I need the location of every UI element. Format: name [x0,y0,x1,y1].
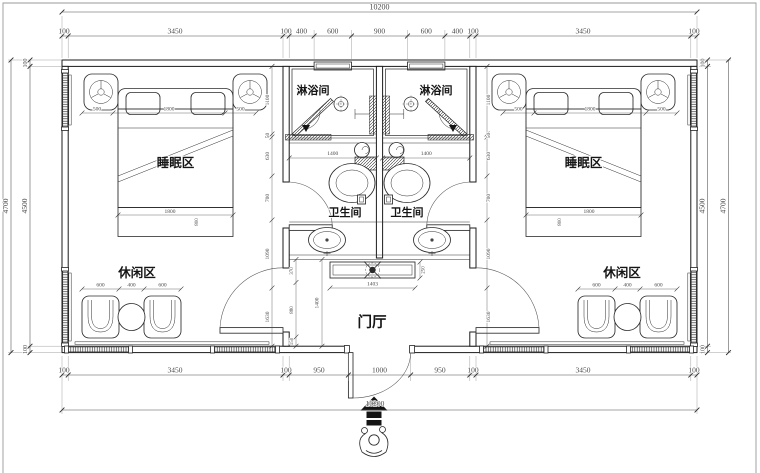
sink-left [309,228,346,257]
dim: 1100 [265,94,271,105]
dim: 600 [158,283,167,289]
dim: 800 [558,218,563,226]
dim: 950 [434,366,446,375]
dim: 630 [265,152,271,161]
floor-plan-drawing: 10200 100 3450 100 400 600 900 600 400 1… [0,0,760,473]
pillow [599,93,633,115]
dim: 1090 [265,248,271,259]
dim: 600 [592,283,601,289]
dim: 150 [290,337,295,345]
dim: 100 [23,59,29,68]
dim: 3450 [168,366,183,375]
sink-right [414,228,451,257]
dim: 100 [701,59,707,68]
dimensions-top: 10200 100 3450 100 400 600 900 600 400 1… [58,3,700,61]
armchair [82,296,119,338]
floor-plan-sheet: 10200 100 3450 100 400 600 900 600 400 1… [0,0,760,473]
dim: 1630 [486,311,492,322]
dim: 50 [265,133,271,139]
room-label-shower-right: 淋浴间 [420,83,453,97]
shower-door-left [293,99,334,137]
pillow [534,93,568,115]
dim: 1800 [164,107,175,113]
dim: 950 [313,366,325,375]
dim: 500 [657,107,666,113]
dim: 50 [486,133,492,139]
dim: 500 [93,107,102,113]
dim: 900 [374,27,386,36]
dimensions-bottom: 100 3450 100 950 1000 950 100 3450 100 1… [58,354,700,414]
nightstand [233,74,267,110]
dim: 100 [58,27,70,36]
dim: 1100 [486,94,492,105]
window-right-top [691,72,696,128]
dim: 100 [58,366,70,375]
window-bottom-2 [213,347,277,352]
dim-overall-top: 10200 [370,3,390,12]
room-label-toilet-right: 卫生间 [391,205,424,219]
nightstand [641,74,675,110]
window-right-bottom [691,270,696,344]
dim: 1403 [367,282,378,288]
dim: 600 [421,27,433,36]
dim: 1000 [372,366,387,375]
dim: 4500 [698,198,707,213]
dim: 4700 [1,198,10,213]
dim: 100 [701,345,707,354]
dim: 600 [654,283,663,289]
dim: 100 [688,27,700,36]
window-bottom-3 [482,347,546,352]
dim: 700 [265,194,271,203]
room-label-toilet-left: 卫生间 [329,205,362,219]
dim: 880 [290,306,295,314]
dimensions-left: 100 4500 100 4700 [1,58,62,355]
window-left-top [63,72,68,128]
floor-drain [333,96,350,113]
armchair [640,296,677,338]
dim: 400 [127,283,136,289]
dim: 400 [452,27,464,36]
dimensions-right: 100 4500 100 4700 [698,58,732,355]
door-leaf-entry [348,353,353,398]
window-bottom-1 [67,347,130,352]
room-label-sleep-left: 睡眠区 [157,155,195,170]
nightstand [492,74,526,110]
dim: 4500 [20,198,29,213]
person-head [369,435,379,445]
dim: 3450 [576,27,591,36]
dim: 1090 [486,248,492,259]
dim: 100 [280,366,292,375]
room-label-shower-left: 淋浴间 [297,83,330,97]
door-leaf-left-room [220,328,283,334]
dim: 4700 [719,198,728,213]
leisure-right [578,296,677,338]
floor-drain [403,96,420,113]
room-label-leisure-right: 休闲区 [602,265,641,280]
room-label-sleep-right: 睡眠区 [565,155,603,170]
dim: 1800 [584,209,595,215]
leisure-left [82,296,181,338]
dim: 1800 [165,209,176,215]
side-table [614,304,641,331]
window-bottom-4 [629,347,692,352]
shower-mixer-left [369,96,376,134]
dim-overall-bottom: 10200 [366,399,385,408]
paper-holder [385,195,393,204]
dim: 3450 [576,366,591,375]
dim: 100 [23,345,29,354]
dim: 3450 [168,27,183,36]
dim: 400 [296,27,308,36]
dim: 400 [623,283,632,289]
dim: 100 [280,27,292,36]
dim: 700 [486,194,492,203]
dim: 500 [514,107,523,113]
dim: 1400 [421,151,432,157]
dim: 1800 [585,107,596,113]
dim: 100 [688,366,700,375]
dim: 500 [236,107,245,113]
dim: 100 [467,27,479,36]
side-table [118,304,145,331]
pillow [126,93,160,115]
armchair [144,296,181,338]
dim: 1630 [265,311,271,322]
dim: 800 [195,218,200,226]
room-label-leisure-left: 休闲区 [117,265,156,280]
dim: 630 [486,152,492,161]
dim: 1400 [315,297,321,308]
room-label-hall: 门厅 [358,313,387,331]
right-room [492,74,677,338]
shower-mixer-right [383,96,390,134]
dim: 370 [290,267,295,275]
dim: 250 [422,266,427,274]
armchair [578,296,615,338]
door-leaf-right-room [476,328,539,334]
window-left-bottom [63,270,68,344]
nightstand [84,74,118,110]
pillow [191,93,225,115]
dim: 600 [327,27,339,36]
left-room [82,74,267,338]
dim: 100 [467,366,479,375]
shower-door-right [426,99,467,137]
paper-holder [358,195,366,204]
dim: 1400 [327,151,338,157]
dim: 600 [96,283,105,289]
